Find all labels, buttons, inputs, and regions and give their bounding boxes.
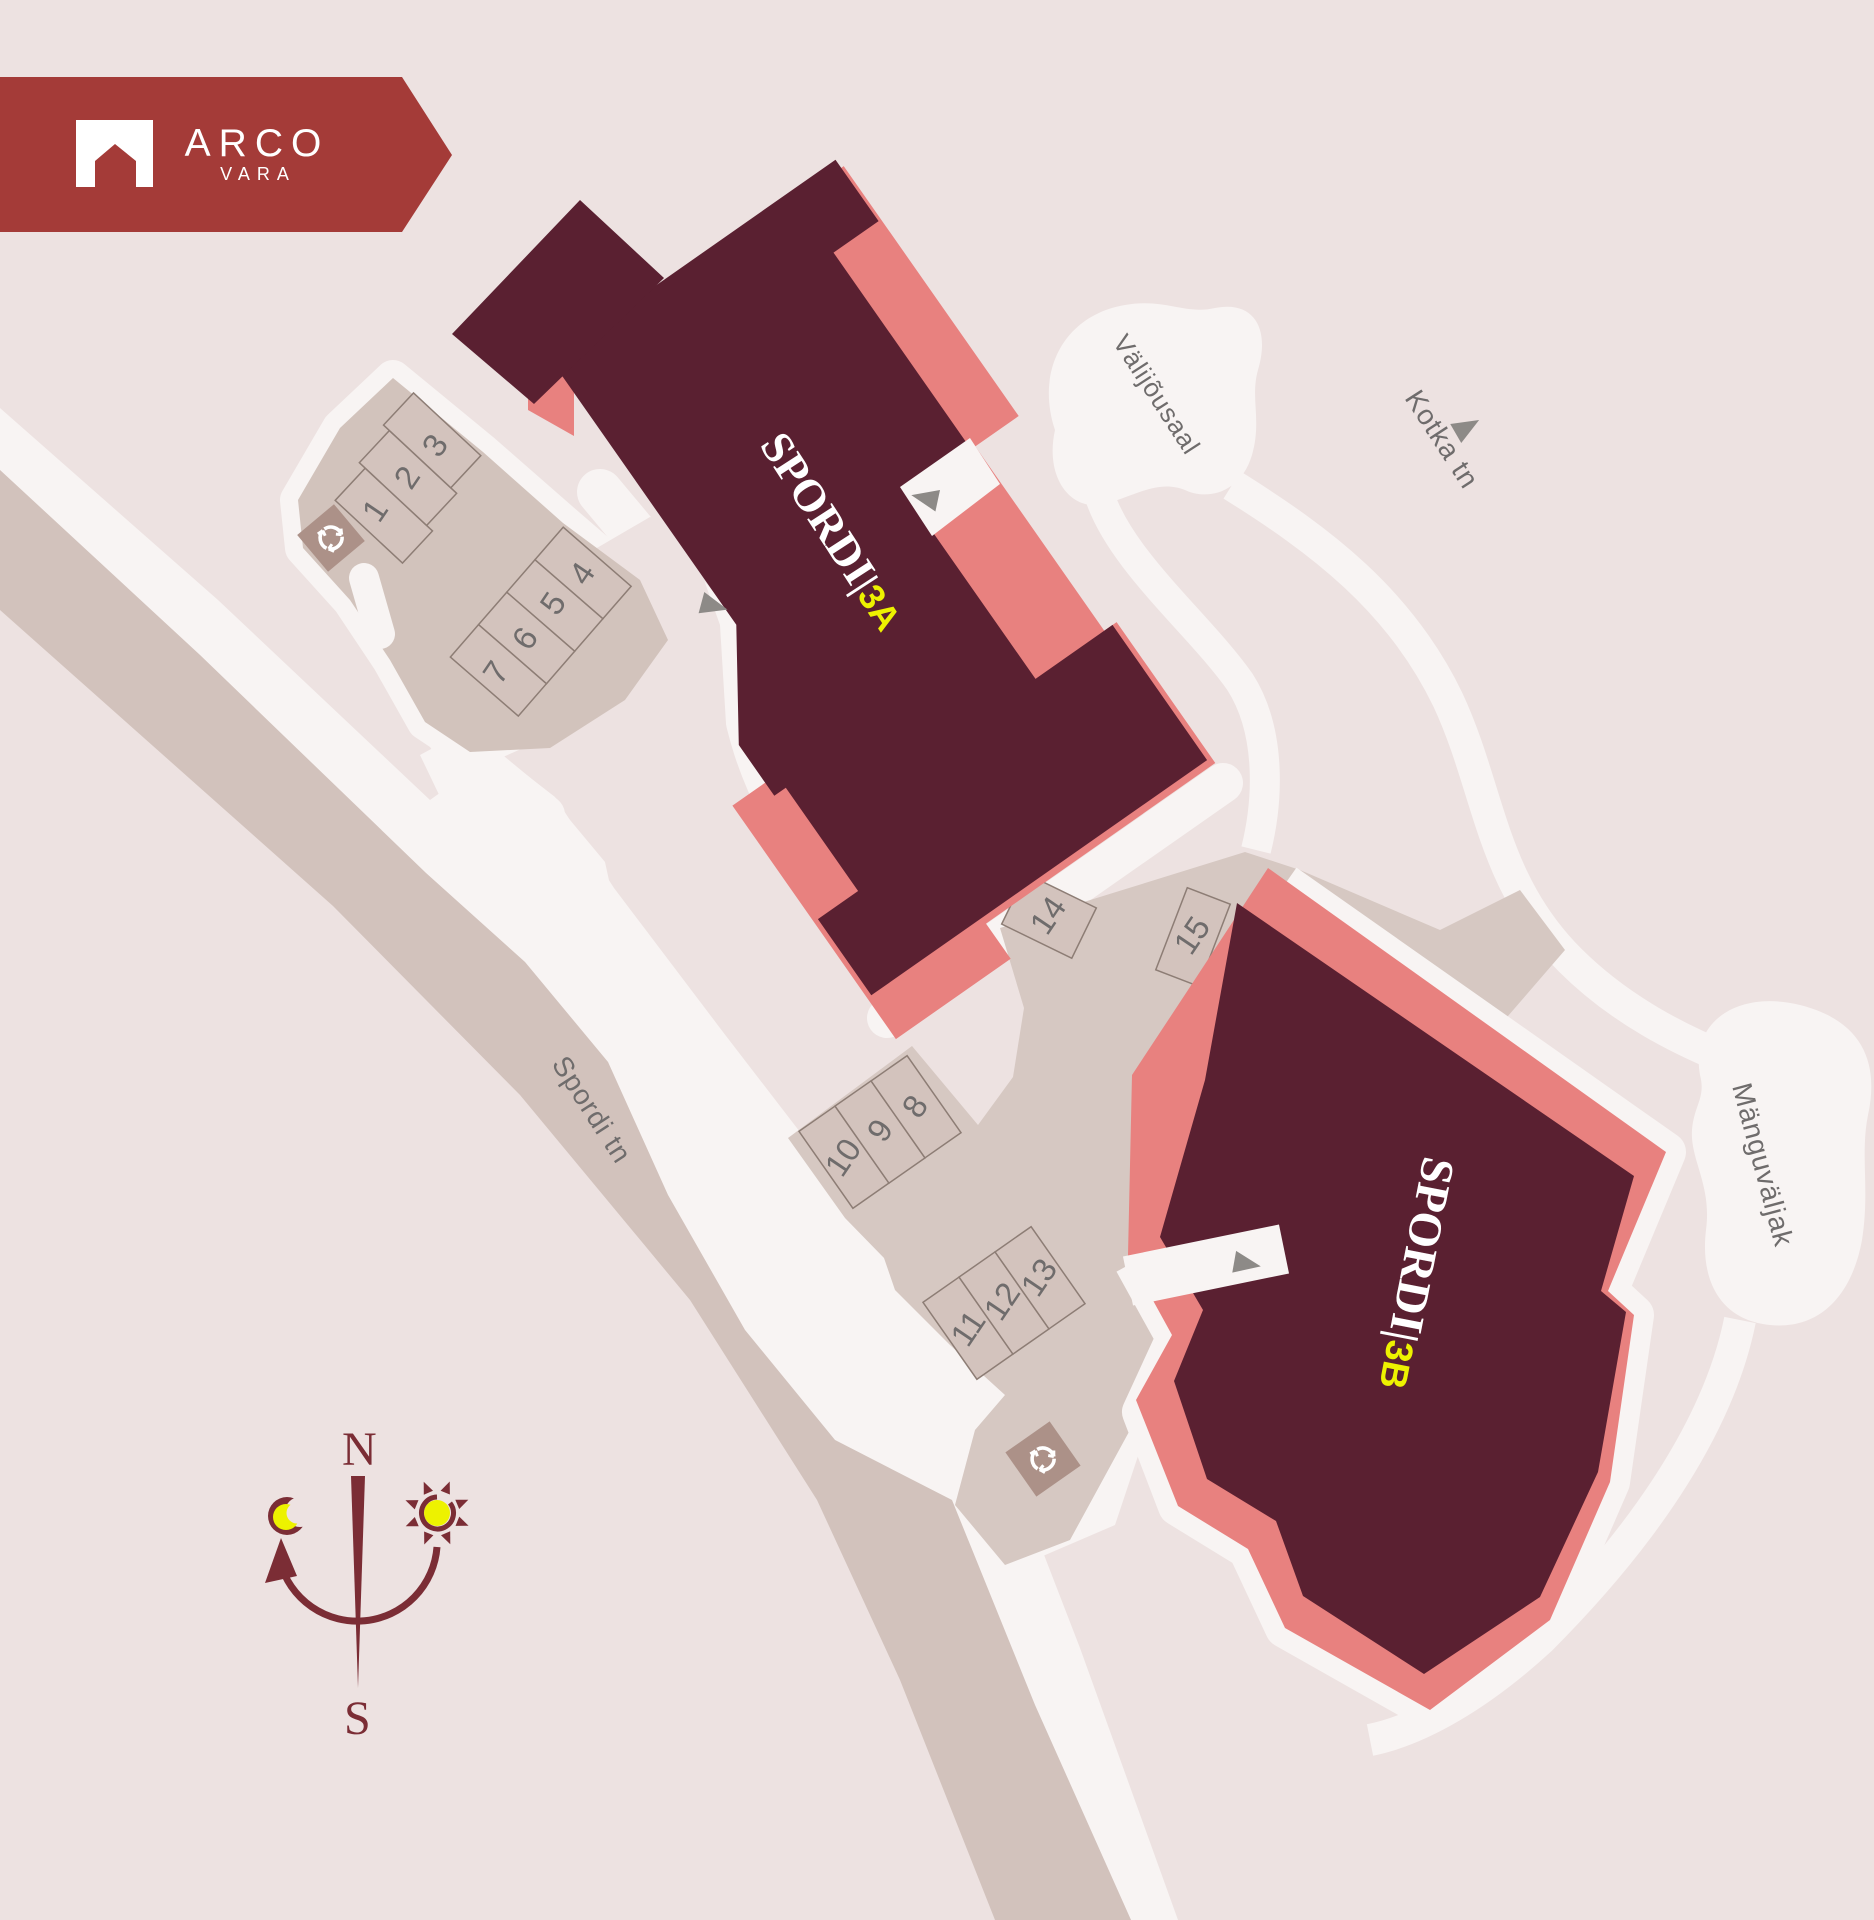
svg-text:ARCO: ARCO — [185, 122, 330, 165]
svg-text:S: S — [344, 1692, 371, 1745]
svg-text:N: N — [342, 1423, 377, 1476]
svg-text:VARA: VARA — [220, 164, 296, 184]
